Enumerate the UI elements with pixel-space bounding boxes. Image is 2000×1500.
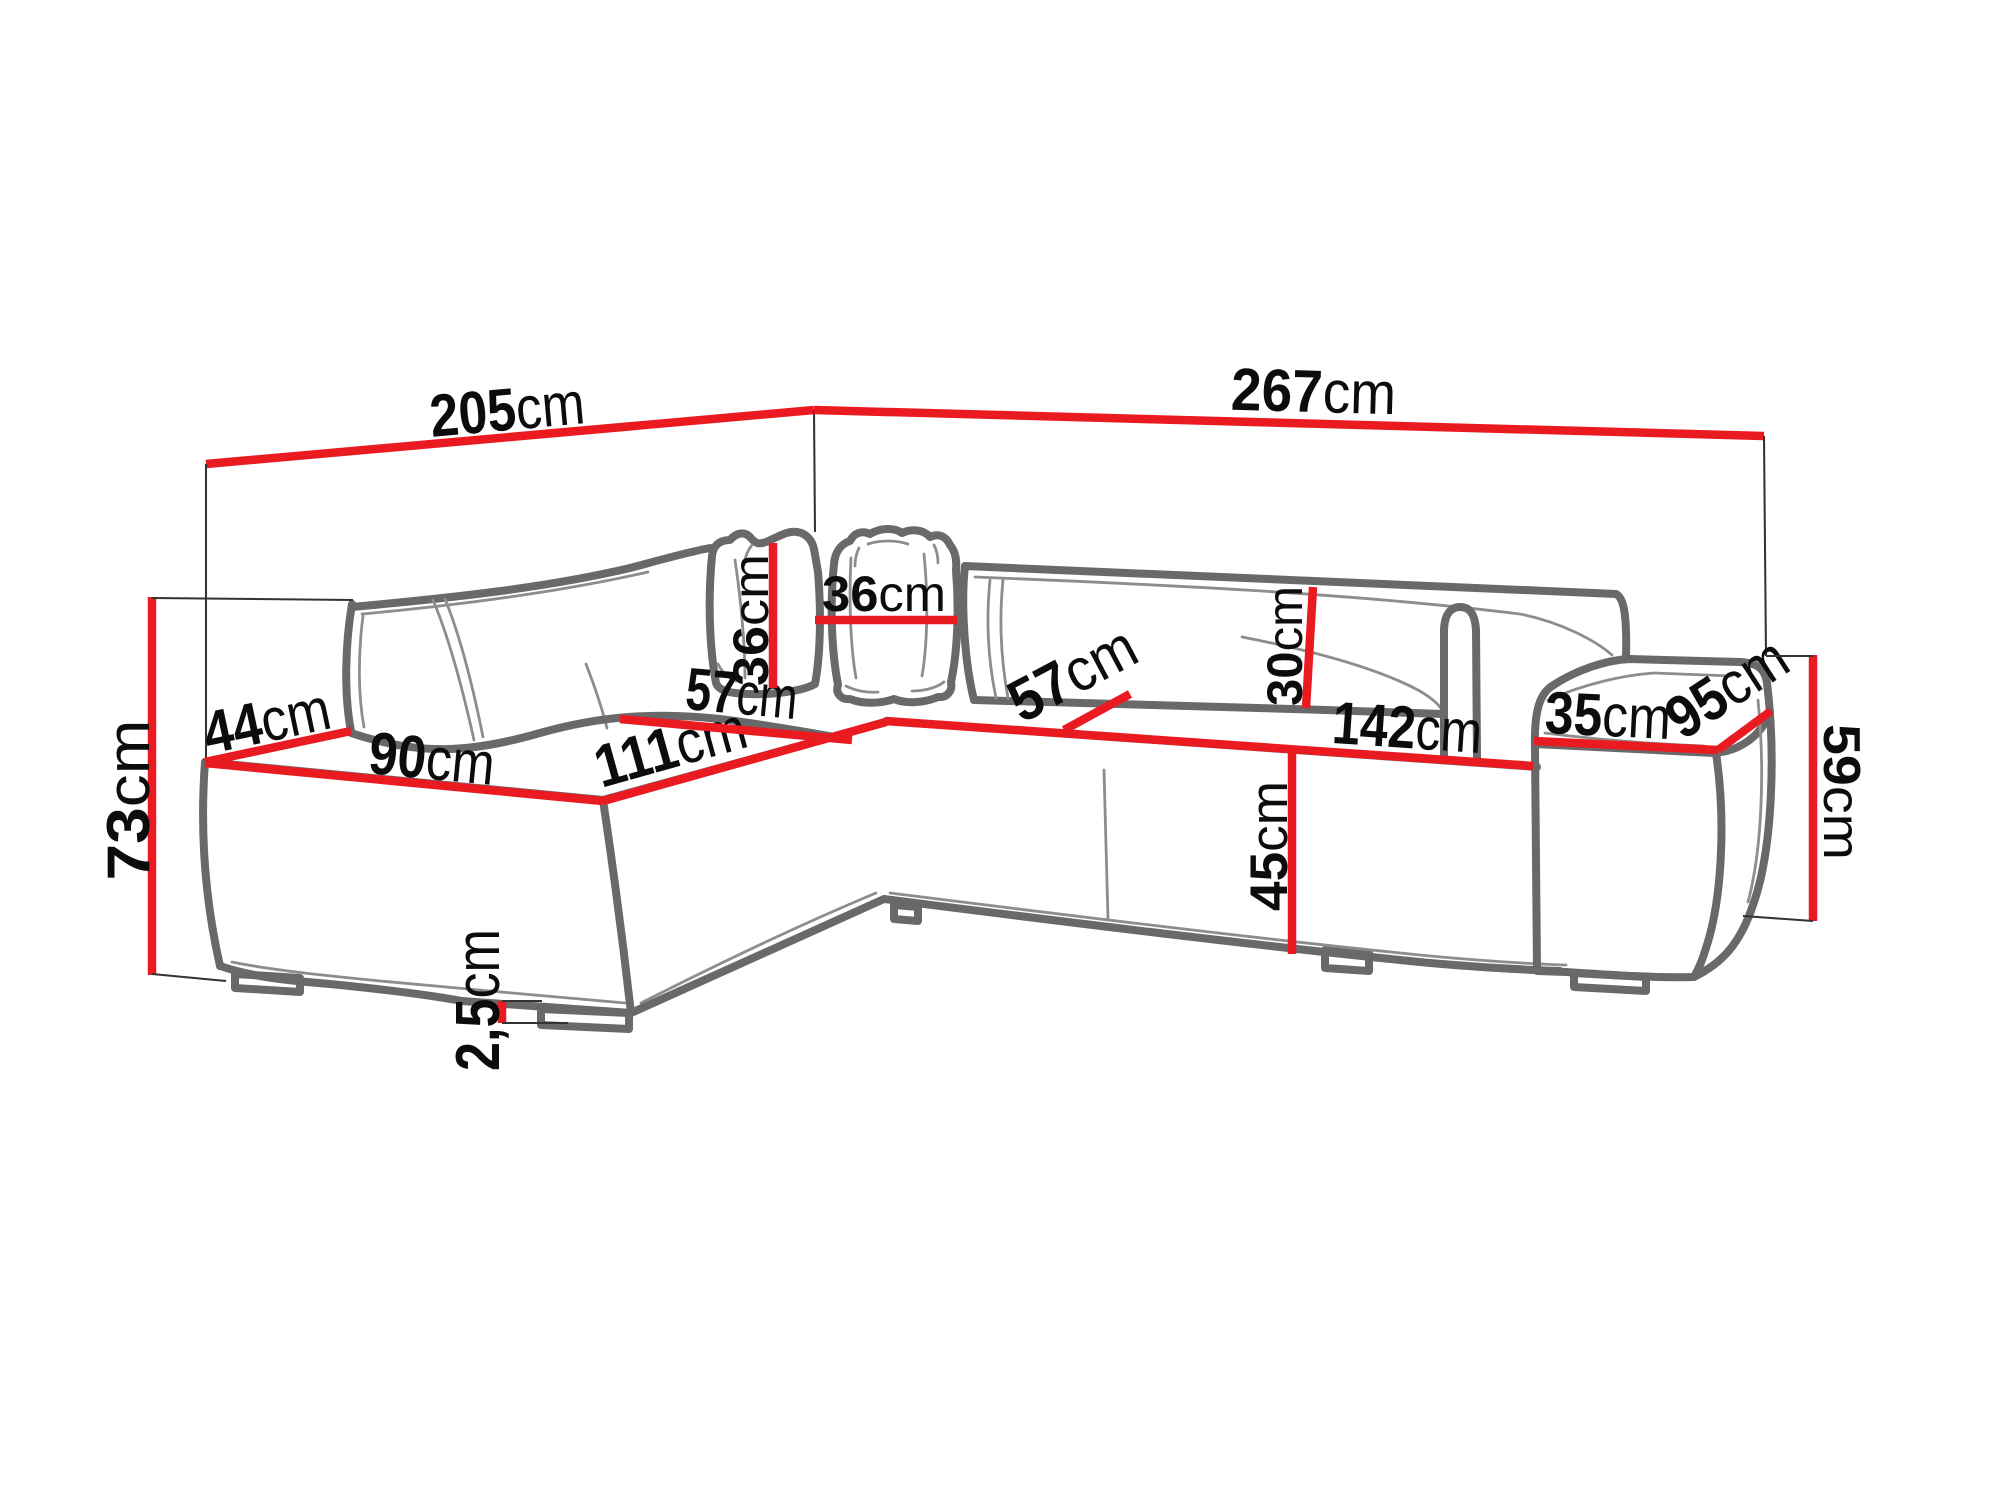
svg-text:45cm: 45cm <box>1240 781 1299 911</box>
svg-text:267cm: 267cm <box>1230 356 1397 428</box>
svg-text:36cm: 36cm <box>822 566 946 622</box>
svg-text:36cm: 36cm <box>723 554 779 686</box>
svg-text:73cm: 73cm <box>95 720 162 881</box>
svg-text:30cm: 30cm <box>1257 586 1313 706</box>
svg-text:142cm: 142cm <box>1330 689 1484 766</box>
svg-text:205cm: 205cm <box>427 369 587 450</box>
svg-text:59cm: 59cm <box>1812 724 1870 860</box>
svg-text:2,5cm: 2,5cm <box>444 929 513 1071</box>
svg-text:90cm: 90cm <box>366 719 498 798</box>
svg-text:35cm: 35cm <box>1543 679 1672 752</box>
